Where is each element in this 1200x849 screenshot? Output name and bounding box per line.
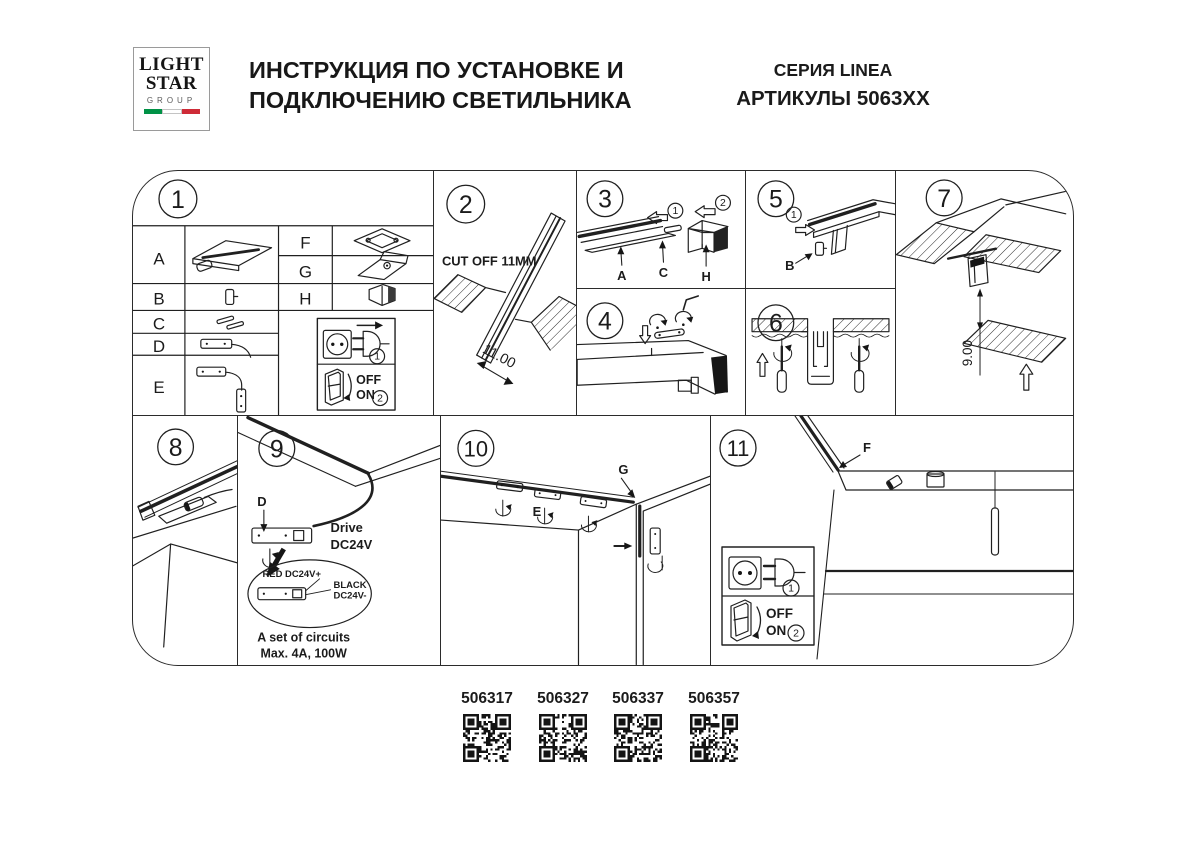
clip-piece	[816, 242, 827, 255]
step-5-badge: 5	[758, 181, 794, 217]
cover-strip-piece	[664, 225, 681, 233]
label-a-arrow: A	[617, 246, 626, 283]
panel-6-fasten-profile: 6	[746, 289, 896, 416]
svg-text:8: 8	[169, 435, 183, 462]
profile-cross-section	[802, 332, 840, 385]
part-h-endcap-icon	[369, 285, 395, 306]
step-11-badge: 11	[720, 430, 756, 466]
qr-code	[463, 714, 511, 762]
part-e-driver-corner-icon	[197, 367, 246, 412]
svg-text:F: F	[863, 440, 871, 455]
cut-off-label: CUT OFF 11MM	[442, 254, 537, 269]
svg-text:B: B	[785, 258, 794, 273]
part-letter-g: G	[299, 263, 312, 282]
downlight-fixture	[927, 472, 944, 488]
articles-label: АРТИКУЛЫ 5063XX	[693, 87, 973, 111]
qr-label: 506337	[609, 691, 667, 707]
track-wire	[314, 474, 373, 526]
part-letter-b: B	[153, 289, 164, 308]
screwdriver-right	[851, 339, 869, 393]
power-steps-box: 1 OFF ON 2	[722, 547, 814, 645]
red-wire-label: RED DC24V+	[262, 569, 321, 580]
svg-text:1: 1	[171, 186, 185, 214]
panel-3-cover-endcap: 3 1 2	[577, 171, 746, 289]
svg-text:2: 2	[459, 192, 473, 219]
svg-text:H: H	[701, 269, 710, 284]
detail-driver	[258, 579, 331, 600]
panel-7-recess-depth: 7 9.00	[896, 171, 1073, 416]
panel-4-pin-connector: 4	[577, 289, 746, 416]
qr-code	[614, 714, 662, 762]
black-wire-label1: BLACK	[334, 580, 367, 591]
step-1-badge: 1	[159, 180, 197, 218]
svg-text:11: 11	[727, 436, 750, 461]
part-letter-h: H	[299, 289, 311, 308]
qr-code	[690, 714, 738, 762]
pendant-fixture	[992, 472, 999, 555]
step-1-plug: 1	[788, 583, 794, 595]
drive-label-line1: Drive	[331, 520, 363, 535]
series-label: СЕРИЯ LINEA	[723, 60, 943, 81]
part-letter-d: D	[153, 337, 165, 356]
step-4-badge: 4	[587, 303, 623, 339]
on-label: ON	[356, 388, 375, 402]
wall-hatch-right	[515, 296, 576, 350]
black-wire-label2: DC24V-	[334, 591, 367, 602]
italian-flag-bar	[144, 109, 200, 114]
step-2-switch: 2	[377, 394, 383, 405]
qr-item: 506337	[609, 691, 667, 762]
label-g-arrow: G	[618, 462, 635, 498]
part-d-driver-icon	[201, 339, 251, 357]
lightstar-logo: LIGHT STAR GROUP	[133, 47, 210, 131]
arrow-step1: 1	[648, 203, 683, 223]
spot-wire	[204, 489, 232, 497]
switch-icon	[325, 369, 351, 405]
panel-10-mount-drivers: 10 E G	[441, 416, 711, 665]
step1-number: 1	[791, 210, 797, 221]
spotlight-cylinder	[183, 496, 204, 511]
panel-9-driver-connection: 9 D Drive DC24V	[238, 416, 441, 665]
rotate-arrows	[650, 311, 694, 329]
label-c-arrow: C	[659, 240, 668, 280]
pin-piece	[654, 329, 684, 339]
label-d-arrow: D	[257, 494, 267, 532]
part-b-connector-icon	[226, 290, 238, 305]
power-steps-box: 1 OFF ON 2	[317, 318, 395, 410]
svg-text:5: 5	[769, 187, 783, 214]
logo-word-star: STAR	[134, 74, 209, 93]
svg-text:3: 3	[598, 187, 612, 214]
label-f-arrow: F	[839, 440, 871, 468]
svg-text:D: D	[257, 494, 266, 509]
svg-text:2: 2	[720, 198, 726, 209]
screwdriver-left	[774, 339, 792, 393]
svg-text:4: 4	[598, 309, 612, 336]
step-8-badge: 8	[158, 429, 194, 465]
panel-8-insert-spot: 8	[133, 416, 238, 665]
label-b-arrow: B	[785, 253, 812, 273]
title-line1: ИНСТРУКЦИЯ ПО УСТАНОВКЕ И	[249, 55, 632, 85]
svg-text:1: 1	[672, 206, 678, 217]
svg-text:G: G	[618, 462, 628, 477]
table-grid	[133, 226, 433, 415]
qr-label: 506327	[534, 691, 592, 707]
qr-item: 506327	[534, 691, 592, 762]
svg-text:10: 10	[464, 436, 488, 461]
bent-wire	[683, 296, 698, 310]
step-2-badge: 2	[447, 185, 485, 223]
logo-word-group: GROUP	[134, 96, 209, 105]
part-f-cutout-icon	[354, 229, 410, 253]
down-arrow-icon	[640, 326, 651, 344]
panel-11-finished-install: 11 F	[711, 416, 1073, 665]
qr-label: 506317	[458, 691, 516, 707]
step-7-badge: 7	[926, 180, 962, 216]
recessed-profile-drawing	[808, 200, 895, 255]
step-10-badge: 10	[458, 430, 494, 466]
panel-2-cut-off: 2 CUT OFF 11MM 11.00	[434, 171, 577, 416]
part-letter-c: C	[153, 314, 165, 333]
step-2-switch: 2	[793, 628, 799, 640]
panel-1-parts-list: 1 A B C D E F G H	[133, 171, 434, 416]
switch-icon	[731, 600, 761, 641]
part-c-pins-icon	[217, 314, 244, 332]
logo-word-light: LIGHT	[134, 55, 209, 74]
drive-label-line2: DC24V	[331, 537, 373, 552]
circuits-label2: Max. 4A, 100W	[261, 646, 348, 660]
title-line2: ПОДКЛЮЧЕНИЮ СВЕТИЛЬНИКА	[249, 85, 632, 115]
part-a-track-icon	[193, 241, 272, 272]
on-label: ON	[766, 623, 786, 638]
track-end-drawing	[577, 341, 728, 395]
off-label: OFF	[766, 606, 793, 621]
svg-text:A: A	[617, 268, 626, 283]
wall-hatch-left	[434, 275, 505, 313]
qr-code	[539, 714, 587, 762]
wall-corner-lines	[133, 506, 237, 647]
up-arrow-icon	[1020, 364, 1033, 390]
endcap-piece	[688, 221, 728, 253]
qr-item: 506357	[685, 691, 743, 762]
qr-label: 506357	[685, 691, 743, 707]
panel-5-clip: 5 1 B	[746, 171, 896, 289]
svg-text:C: C	[659, 265, 668, 280]
svg-text:9: 9	[270, 435, 284, 463]
ceiling-track-drawing	[795, 416, 1073, 659]
circuits-label1: A set of circuits	[257, 631, 350, 645]
svg-text:7: 7	[937, 185, 951, 213]
room-corner-lines	[441, 471, 710, 664]
page-title: ИНСТРУКЦИЯ ПО УСТАНОВКЕ И ПОДКЛЮЧЕНИЮ СВ…	[249, 55, 632, 115]
label-e: E	[533, 504, 542, 519]
spotlight-fixture	[886, 475, 903, 490]
part-letter-e: E	[153, 378, 164, 397]
up-arrow-icon	[757, 353, 768, 376]
ceiling-track-lines	[238, 418, 440, 487]
part-letter-f: F	[300, 234, 310, 253]
qr-item: 506317	[458, 691, 516, 762]
driver-box	[252, 528, 312, 543]
step-1-plug: 1	[374, 352, 380, 363]
off-label: OFF	[356, 373, 381, 387]
insert-arrow	[796, 225, 815, 236]
instruction-sheet: 1 A B C D E F G H	[132, 170, 1074, 666]
part-letter-a: A	[153, 250, 165, 269]
dimension-11mm: 11.00	[477, 341, 518, 384]
arrow-step2: 2	[695, 195, 730, 217]
step-3-badge: 3	[587, 181, 623, 217]
